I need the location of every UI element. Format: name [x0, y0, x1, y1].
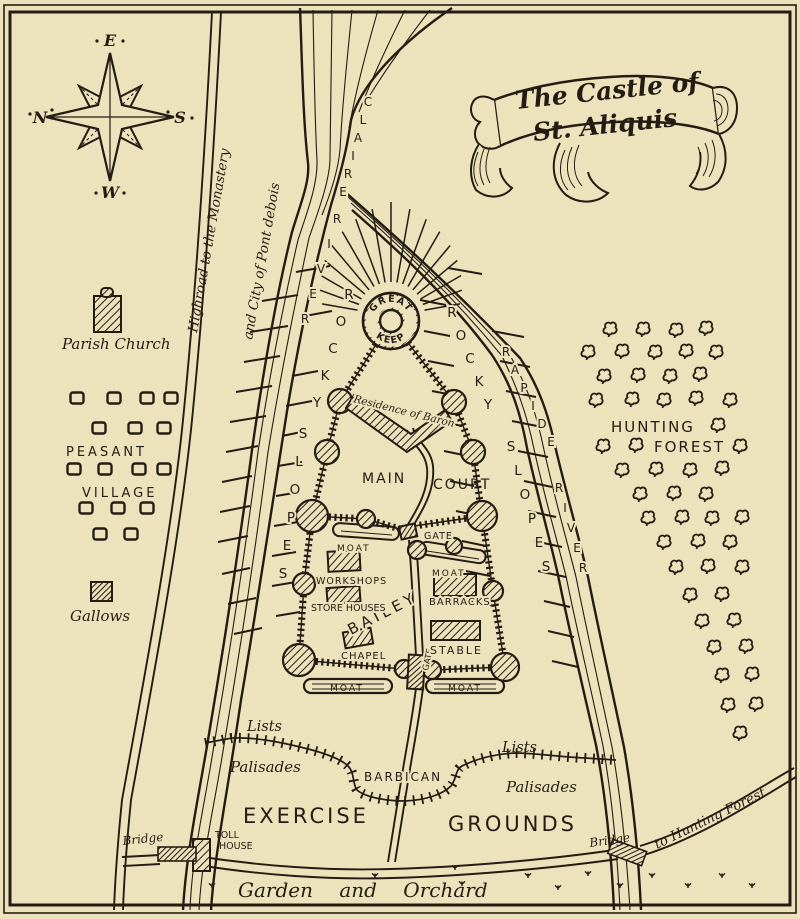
claire-letter: L [360, 113, 367, 127]
compass-west-label: W [101, 183, 121, 202]
rapide-river-letter: R [579, 561, 587, 575]
lists-left-label: Lists [246, 719, 282, 735]
toll-house-label-line1: TOLL [214, 830, 240, 841]
main-court-label-2: COURT [433, 477, 491, 493]
tower [461, 440, 485, 464]
compass-north-label: N [32, 108, 49, 127]
middle-gate-icon [399, 523, 417, 539]
palisades-right-label: Palisades [505, 778, 577, 796]
rapide-letter: I [531, 399, 535, 413]
stable-building [431, 621, 480, 640]
slopes-right-letter: S [507, 439, 516, 455]
claire-letter: E [339, 185, 347, 199]
toll-house-label-line2: HOUSE [219, 841, 253, 852]
claire-river-letter: R [301, 312, 309, 326]
parish-church-apse [101, 288, 113, 297]
claire-letter: I [351, 149, 355, 163]
claire-river-letter: E [309, 287, 317, 301]
compass-south-label: S [174, 108, 186, 127]
rocky-left-letter: R [344, 287, 353, 303]
slopes-left-letter: P [287, 510, 295, 526]
rocky-right-letter: O [456, 328, 467, 344]
claire-letter: C [364, 95, 372, 109]
rocky-left-letter: C [328, 341, 337, 357]
claire-river-letter: R [333, 212, 341, 226]
grounds-label: GROUNDS [448, 812, 577, 836]
slopes-left-letter: S [299, 426, 308, 442]
rocky-left-letter: O [336, 314, 347, 330]
tower [293, 573, 315, 595]
tower [467, 501, 497, 531]
map-canvas: GREAT KEEP ROCKYSLOPESROCKYSLOPESCLAIRER… [0, 0, 800, 919]
claire-letter: A [354, 131, 363, 145]
workshops-label: WORKSHOPS [316, 576, 387, 587]
slopes-left-letter: O [290, 482, 301, 498]
rocky-left-letter: Y [312, 395, 322, 411]
hunting-label: HUNTING [611, 418, 695, 436]
rapide-river-letter: I [563, 501, 567, 515]
stable-label: STABLE [430, 644, 483, 657]
rapide-letter: E [547, 435, 555, 449]
peasant-label: PEASANT [66, 445, 147, 460]
rocky-left-letter: K [321, 368, 331, 384]
exercise-label: EXERCISE [243, 804, 369, 828]
rocky-right-letter: C [465, 351, 474, 367]
compass-east-label: E [103, 31, 117, 50]
gallows-label: Gallows [70, 607, 130, 625]
tower [408, 541, 426, 559]
parish-church-building [94, 296, 121, 332]
rapide-letter: R [502, 345, 510, 359]
moat-right-mid-label: MOAT [432, 569, 466, 579]
chapel-label: CHAPEL [341, 651, 386, 662]
slopes-right-letter: O [520, 487, 531, 503]
slopes-right-letter: S [542, 559, 551, 575]
rocky-right-letter: R [447, 305, 456, 321]
barbican-label: BARBICAN [364, 770, 442, 784]
palisades-left-label: Palisades [229, 758, 301, 776]
lists-right-label: Lists [501, 740, 537, 756]
tower [296, 500, 328, 532]
claire-river-letter: V [317, 262, 326, 276]
rapide-river-letter: E [573, 541, 581, 555]
rapide-letter: A [511, 363, 520, 377]
garden-orchard-label: Garden and Orchard [238, 878, 488, 902]
claire-river-letter: I [327, 237, 331, 251]
gate-middle-label: GATE [424, 531, 453, 542]
parish-church-label: Parish Church [61, 335, 171, 353]
slopes-right-letter: P [528, 511, 536, 527]
barracks-label: BARRACKS [429, 597, 491, 608]
bridge-left-icon [158, 847, 196, 861]
rapide-letter: D [537, 417, 546, 431]
slopes-left-letter: S [279, 566, 288, 582]
great-keep: GREAT KEEP [363, 293, 419, 349]
rocky-right-letter: Y [483, 397, 493, 413]
forest-label: FOREST [654, 438, 725, 456]
moat-left-bottom-label: MOAT [330, 684, 364, 694]
main-court-label-1: MAIN [362, 471, 406, 487]
village-label: VILLAGE [82, 486, 157, 501]
moat-right-bottom-label: MOAT [448, 684, 482, 694]
rapide-river-letter: V [567, 521, 576, 535]
rapide-letter: P [520, 381, 527, 395]
moat-left-mid-label: MOAT [337, 544, 371, 554]
store-houses-building [326, 586, 360, 604]
tower [283, 644, 315, 676]
slopes-right-letter: L [514, 463, 522, 479]
store-houses-label: STORE HOUSES [311, 603, 386, 614]
tower [357, 510, 375, 528]
castle-map: GREAT KEEP ROCKYSLOPESROCKYSLOPESCLAIRER… [0, 0, 800, 919]
slopes-left-letter: L [295, 454, 303, 470]
slopes-left-letter: E [283, 538, 292, 554]
claire-letter: R [344, 167, 352, 181]
rapide-river-letter: R [555, 481, 563, 495]
slopes-right-letter: E [535, 535, 544, 551]
tower [315, 440, 339, 464]
tower [491, 653, 519, 681]
gallows-icon [91, 582, 112, 601]
rocky-right-letter: K [475, 374, 485, 390]
